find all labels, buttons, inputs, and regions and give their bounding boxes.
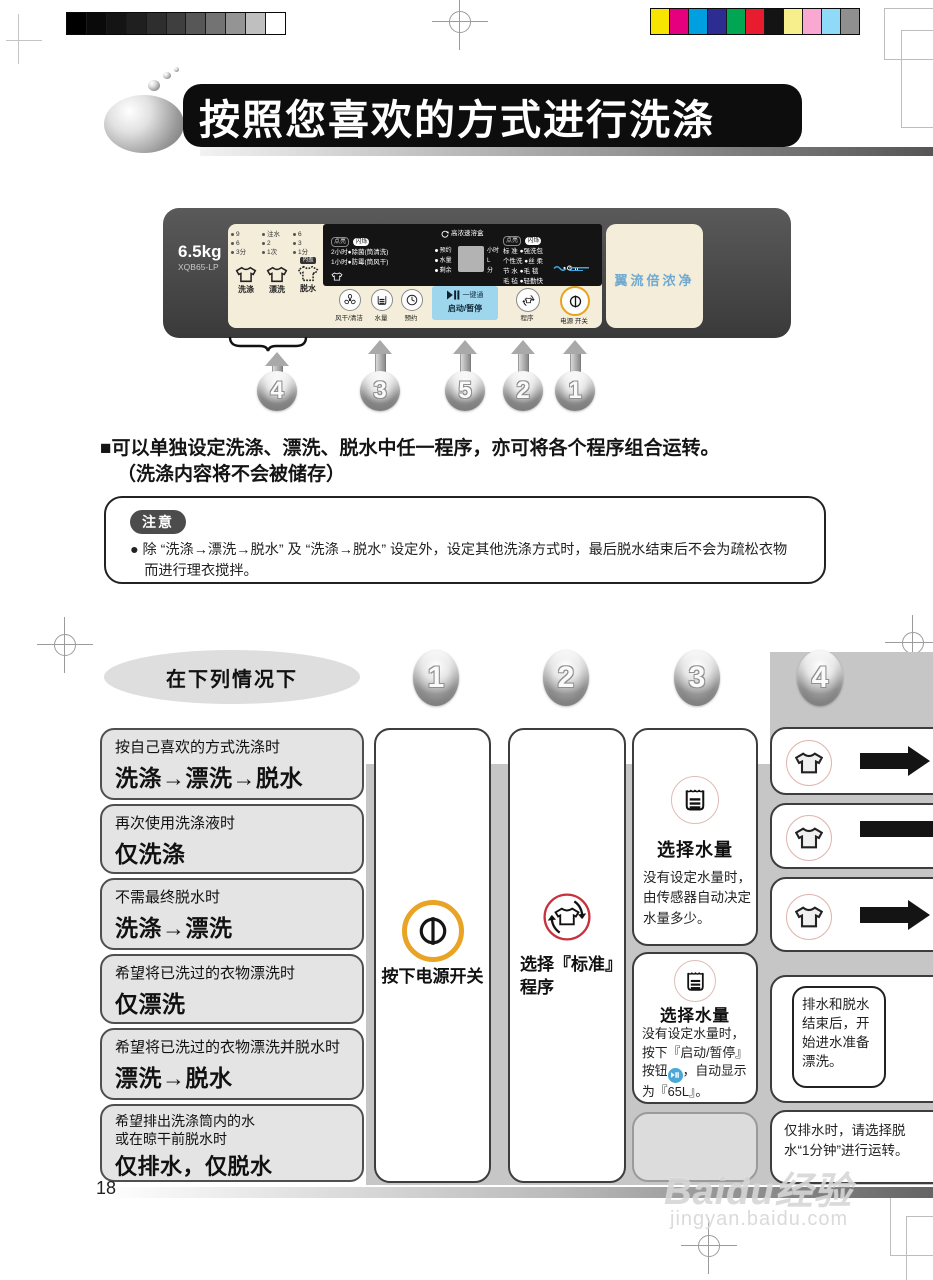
color-swatch <box>841 9 859 34</box>
power-button <box>560 286 590 316</box>
condition-row: 再次使用洗涤液时仅洗涤 <box>100 804 364 874</box>
gray-swatch <box>266 13 285 34</box>
color-swatch <box>670 9 689 34</box>
step4-note-2: 仅排水时，请选择脱水“1分钟”进行运转。 <box>784 1121 924 1162</box>
watermark-brand: Baidu经验 <box>664 1160 853 1215</box>
step1-label: 按下电源开关 <box>376 962 489 987</box>
water-level-icon <box>682 787 708 813</box>
power-ring-icon <box>402 900 464 962</box>
capacity-value: 6.5kg <box>178 242 221 262</box>
program-cycle-icon <box>542 892 592 942</box>
wash-column: 9 6 3分 洗涤 <box>231 230 261 295</box>
page-title-banner: 按照您喜欢的方式进行洗涤 <box>183 84 802 147</box>
condition-row: 希望将已洗过的衣物漂洗并脱水时漂洗→脱水 <box>100 1028 364 1100</box>
gray-swatch <box>127 13 147 34</box>
intro-line-2: （洗涤内容将不会被储存） <box>117 459 345 486</box>
step3b-text: 没有设定水量时，按下『启动/暂停』按钮，自动显示为『65L』。 <box>642 1025 752 1101</box>
reserve-label: 预约 <box>389 312 433 322</box>
refresh-icon <box>441 230 449 238</box>
timer-line-2: 1小时●防霉(筒风干) <box>331 258 388 268</box>
timer-line-1: 2小时●除菌(筒清洗) <box>331 248 388 258</box>
color-calibration-bar <box>650 8 860 35</box>
panel-brand-area: 翼流倍浓净 <box>606 224 703 328</box>
grayscale-calibration-bar <box>66 12 286 35</box>
shirt-ring-icon <box>786 815 832 861</box>
corner-trim-mark <box>18 14 19 64</box>
arrow-right-icon <box>860 821 933 837</box>
lcd-display <box>458 246 484 272</box>
display-right-labels: 小时 L 分 <box>487 246 499 276</box>
capacity-label: 6.5kg XQB65-LP <box>178 242 221 272</box>
step3-box-b: 选择水量 没有设定水量时，按下『启动/暂停』按钮，自动显示为『65L』。 <box>632 952 758 1104</box>
shirt-icon <box>331 272 343 281</box>
step2-box: 选择『标准』 程序 <box>508 728 626 1183</box>
display-left-labels: 预约 水量 剩余 <box>435 246 452 276</box>
spin-column: 6 3 1分 内盖 脱水 <box>293 230 323 295</box>
step4-note-1: 排水和脱水结束后，开始进水准备漂洗。 <box>792 986 886 1088</box>
program-list: 点亮 闪烁 标 准 ●强洗包 个性洗 ●丝 柔 节 水 ●毛 毯 毛 毡 ●轻勤… <box>503 229 543 287</box>
clock-icon <box>406 294 418 306</box>
one-touch-label: 一键通 <box>463 290 484 300</box>
gray-swatch <box>87 13 107 34</box>
water-level-icon <box>684 970 707 993</box>
callout-number-5: 5 <box>445 371 485 411</box>
notice-text: ● 除 “洗涤→漂洗→脱水” 及 “洗涤→脱水” 设定外，设定其他洗涤方式时，最… <box>130 540 814 581</box>
blink-badge: 闪烁 <box>525 237 541 245</box>
program-button <box>516 288 540 312</box>
step4-box-2 <box>770 803 933 869</box>
condition-row: 按自己喜欢的方式洗涤时洗涤→漂洗→脱水 <box>100 728 364 800</box>
bubble-icon <box>163 72 171 79</box>
step3a-text: 没有设定水量时，由传感器自动决定水量多少。 <box>643 868 751 929</box>
callout-arrow <box>562 340 588 373</box>
lit-badge: 点亮 <box>503 236 521 246</box>
corner-trim-mark <box>6 40 42 41</box>
washer-control-panel: 6.5kg XQB65-LP 翼流倍浓净 点亮 闪烁 2小时●除菌(筒清洗) 1… <box>163 208 791 338</box>
color-swatch <box>822 9 841 34</box>
power-icon <box>417 915 449 947</box>
color-swatch <box>803 9 822 34</box>
rinse-column: 注水 2 1次 漂洗 <box>262 230 292 295</box>
spin-option-badge: 内盖 <box>300 257 315 264</box>
dispenser-label: 高浓速溶盒 <box>441 229 484 239</box>
program-cycle-icon <box>521 293 536 308</box>
condition-row: 希望将已洗过的衣物漂洗时仅漂洗 <box>100 954 364 1024</box>
color-swatch <box>689 9 708 34</box>
corner-trim-mark <box>901 30 933 128</box>
water-level-ring-icon <box>671 776 719 824</box>
callout-number-2: 2 <box>503 371 543 411</box>
step4-box-1 <box>770 727 933 795</box>
bubble-icon <box>174 67 179 72</box>
lit-badge: 点亮 <box>331 237 349 247</box>
panel-display-section: 点亮 闪烁 2小时●除菌(筒清洗) 1小时●防霉(筒风干) 高浓速溶盒 <box>323 224 602 286</box>
watermark-url: jingyan.baidu.com <box>670 1208 848 1231</box>
gray-swatch <box>67 13 87 34</box>
intro-line-1: ■可以单独设定洗涤、漂洗、脱水中任一程序，亦可将各个程序组合运转。 <box>100 433 719 460</box>
water-level-icon <box>376 294 388 306</box>
gray-swatch <box>186 13 206 34</box>
start-pause-label: 启动/暂停 <box>432 303 498 314</box>
step4-box-3 <box>770 877 933 952</box>
color-swatch <box>765 9 784 34</box>
title-underline <box>200 147 933 156</box>
corner-trim-mark <box>906 1216 933 1280</box>
bubble-icon <box>104 95 184 153</box>
step4-box-4: 排水和脱水结束后，开始进水准备漂洗。 <box>770 975 933 1103</box>
step1-box: 按下电源开关 <box>374 728 491 1183</box>
step-number-2: 2 <box>543 650 589 706</box>
step3-box-a: 选择水量 没有设定水量时，由传感器自动决定水量多少。 <box>632 728 758 946</box>
registration-mark <box>37 617 93 673</box>
callout-number-4: 4 <box>257 371 297 411</box>
blink-badge: 闪烁 <box>353 238 369 246</box>
gray-swatch <box>206 13 226 34</box>
fan-icon <box>344 294 356 306</box>
shirt-icon <box>266 266 288 283</box>
callout-arrow <box>510 340 536 373</box>
gray-swatch <box>147 13 167 34</box>
shirt-icon <box>795 826 823 850</box>
shirt-icon <box>795 905 823 929</box>
manual-page: 按照您喜欢的方式进行洗涤 6.5kg XQB65-LP 翼流倍浓净 点亮 闪烁 … <box>0 0 933 1280</box>
arrow-right-icon <box>860 746 930 776</box>
callout-number-3: 3 <box>360 371 400 411</box>
step-number-1: 1 <box>413 650 459 706</box>
callout-arrow <box>452 340 478 373</box>
gray-swatch <box>226 13 246 34</box>
callout-arrow <box>264 352 290 373</box>
color-swatch <box>727 9 746 34</box>
arrow-right-icon <box>860 900 930 930</box>
color-swatch <box>708 9 727 34</box>
power-icon <box>568 294 583 309</box>
step3a-title: 选择水量 <box>634 836 756 862</box>
notice-badge: 注意 <box>130 510 186 534</box>
notice-box: 注意 ● 除 “洗涤→漂洗→脱水” 及 “洗涤→脱水” 设定外，设定其他洗涤方式… <box>104 496 826 584</box>
cycle-option-columns: 9 6 3分 洗涤 注水 2 1次 漂洗 6 3 1分 <box>231 230 323 295</box>
air-dry-button <box>339 289 361 311</box>
timer-block: 点亮 闪烁 2小时●除菌(筒清洗) 1小时●防霉(筒风干) <box>331 230 388 286</box>
bubble-icon <box>148 80 160 91</box>
play-pause-icon <box>668 1068 683 1083</box>
power-label: 电源 开关 <box>549 315 599 325</box>
gray-swatch <box>107 13 127 34</box>
shirt-icon <box>795 751 823 775</box>
condition-row: 不需最终脱水时洗涤→漂洗 <box>100 878 364 950</box>
color-swatch <box>746 9 765 34</box>
registration-mark <box>432 0 488 50</box>
shirt-icon <box>235 266 257 283</box>
condition-row: 希望排出洗涤筒内的水 或在晾干前脱水时仅排水，仅脱水 <box>100 1104 364 1182</box>
start-pause-button: 一键通 启动/暂停 <box>432 286 498 320</box>
play-pause-icon <box>447 290 460 300</box>
step-number-3: 3 <box>674 650 720 706</box>
brand-logo-icon <box>553 264 591 273</box>
model-number: XQB65-LP <box>178 262 221 272</box>
color-swatch <box>784 9 803 34</box>
situation-header: 在下列情况下 <box>104 650 360 704</box>
gray-swatch <box>167 13 187 34</box>
water-level-ring-icon <box>674 960 716 1002</box>
group-bracket <box>228 335 308 352</box>
brand-slogan: 翼流倍浓净 <box>606 270 703 289</box>
gray-swatch <box>246 13 266 34</box>
callout-arrow <box>367 340 393 373</box>
step-number-4: 4 <box>797 650 843 706</box>
page-number: 18 <box>96 1178 116 1199</box>
page-title: 按照您喜欢的方式进行洗涤 <box>199 86 715 146</box>
step3b-title: 选择水量 <box>634 1002 756 1026</box>
callout-number-1: 1 <box>555 371 595 411</box>
step2-label: 选择『标准』 程序 <box>520 954 622 1000</box>
shirt-icon <box>297 265 319 282</box>
color-swatch <box>651 9 670 34</box>
shirt-ring-icon <box>786 740 832 786</box>
water-level-button <box>371 289 393 311</box>
shirt-ring-icon <box>786 894 832 940</box>
program-label: 程序 <box>505 312 549 322</box>
reserve-button <box>401 289 423 311</box>
